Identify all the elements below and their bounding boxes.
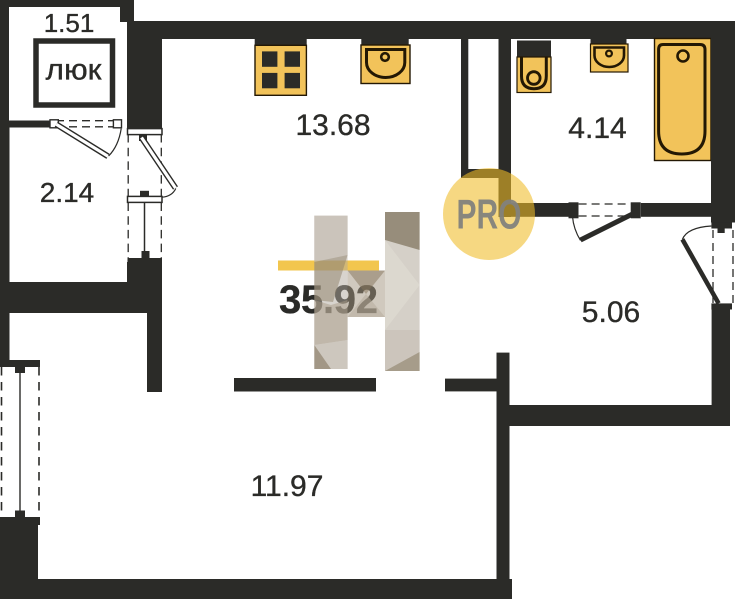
svg-text:11.97: 11.97 — [251, 470, 324, 503]
svg-text:PRO: PRO — [457, 191, 522, 238]
svg-text:1.51: 1.51 — [44, 8, 95, 38]
svg-text:4.14: 4.14 — [568, 112, 626, 145]
svg-text:13.68: 13.68 — [295, 109, 370, 142]
svg-text:люк: люк — [46, 54, 103, 87]
svg-text:5.06: 5.06 — [582, 296, 640, 329]
svg-text:2.14: 2.14 — [40, 177, 95, 208]
